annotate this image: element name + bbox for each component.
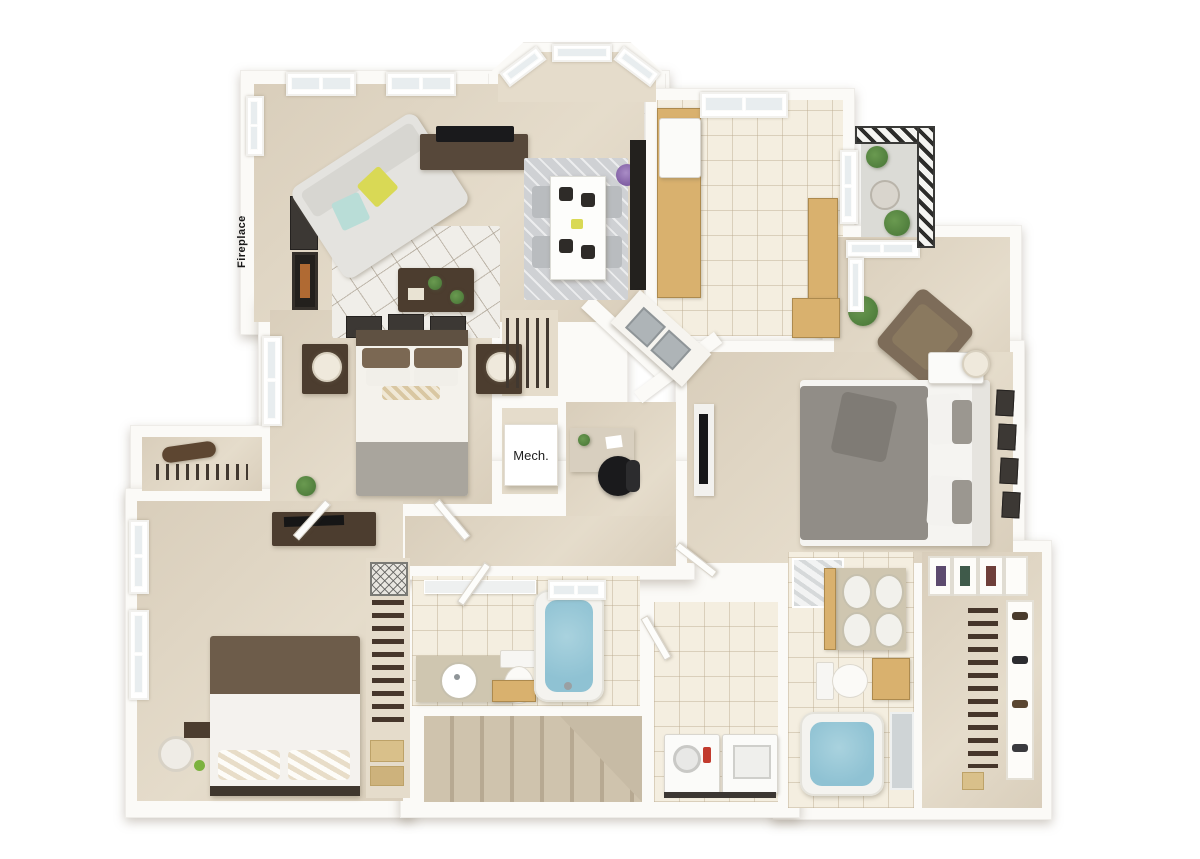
floor-plan-render: Fireplace [0,0,1200,859]
pillow [366,368,410,386]
coat-closet-clothes [156,464,248,480]
wall-frame [999,458,1018,485]
closet2-clothes [506,318,554,388]
balcony-railing-right [917,126,935,248]
vanity-sink [874,574,904,610]
bath2-tub [534,590,604,702]
hanging-clothes-rod [968,608,998,768]
detergent [703,747,711,763]
dryer [722,734,778,794]
master-wall-tv [699,414,708,484]
bath2-vent [548,580,606,600]
pillow-brown [362,348,410,368]
wire-basket [370,562,408,596]
bedroom2-window [262,336,282,426]
plant [296,476,316,496]
hamper [158,736,194,772]
tub-water [545,600,593,692]
bedroom3-bed [210,636,360,796]
headboard [972,380,990,546]
closet-shelf-unit [928,556,1028,596]
master-tub [800,712,884,796]
shoes [1012,700,1028,708]
coffee-table [398,268,474,312]
master-bed [800,380,990,546]
balcony-plant [884,210,910,236]
tub-glass-panel [890,712,914,790]
refrigerator [659,118,701,178]
skylight-kitchen [700,92,788,118]
kitchen-counter-right [792,298,840,338]
vanity-side-cabinet [824,568,836,650]
headboard [356,330,468,346]
accent-pillow [382,386,440,400]
accent-pillow [952,400,972,444]
lamp [312,352,342,382]
green-ball [194,760,205,771]
mech-label: Mech. [513,448,548,463]
book-stack [184,722,210,738]
master-toilet-bowl [832,664,868,698]
tub-faucet [564,682,572,690]
comforter [210,636,360,694]
hanging-item [986,566,996,586]
vanity-sink [842,574,872,610]
accent-pillow [952,480,972,524]
appliance-plinth [664,792,776,798]
folded-linens [370,766,404,786]
closet3-clothes [372,600,404,730]
faucet [454,674,460,680]
office-chair [598,456,638,496]
pillow-brown [414,348,462,368]
skylight-living-2 [386,72,456,96]
shoe-shelf [1006,600,1034,780]
dining-hutch [630,140,646,290]
folded-linens [370,740,404,762]
vanity-sink [842,612,872,648]
wall-frame [1001,492,1020,519]
kitchen-pantry [808,198,838,310]
bath2-cabinet [492,680,536,702]
storage-box [962,772,984,790]
footboard-bench [210,786,360,796]
double-vanity [836,568,906,650]
dining-table [550,176,606,280]
shoes [1012,656,1028,664]
master-bath-cabinet [872,658,910,700]
patterned-pillow [288,750,350,780]
patterned-pillow [218,750,280,780]
living-window-left [246,96,264,156]
fireplace-label: Fireplace [236,168,248,268]
mechanical-unit: Mech. [504,424,558,486]
skylight-living-1 [286,72,356,96]
hallway-floor [405,516,675,566]
shoes [1012,612,1028,620]
balcony-table [870,180,900,210]
pillow [414,368,458,386]
balcony-plant-2 [866,146,888,168]
kitchen-window [840,150,858,224]
bedroom2-bed [356,330,468,496]
fireplace [292,252,318,310]
hanging-item [960,566,970,586]
duvet [356,442,468,496]
bedroom3-window [129,610,149,700]
balcony-door-glass [846,240,920,258]
wall-frame [997,424,1016,451]
television [436,126,514,142]
shoes [1012,744,1028,752]
round-sink [440,662,478,700]
hanging-item [936,566,946,586]
kitchen-balcony-sidelight [848,258,864,312]
hall-window [129,520,149,594]
vanity-sink [874,612,904,648]
bay-window-center [552,44,612,62]
master-lamp [962,350,990,378]
tub-water [810,722,874,786]
wall-frame [995,390,1014,417]
washer [664,734,720,794]
